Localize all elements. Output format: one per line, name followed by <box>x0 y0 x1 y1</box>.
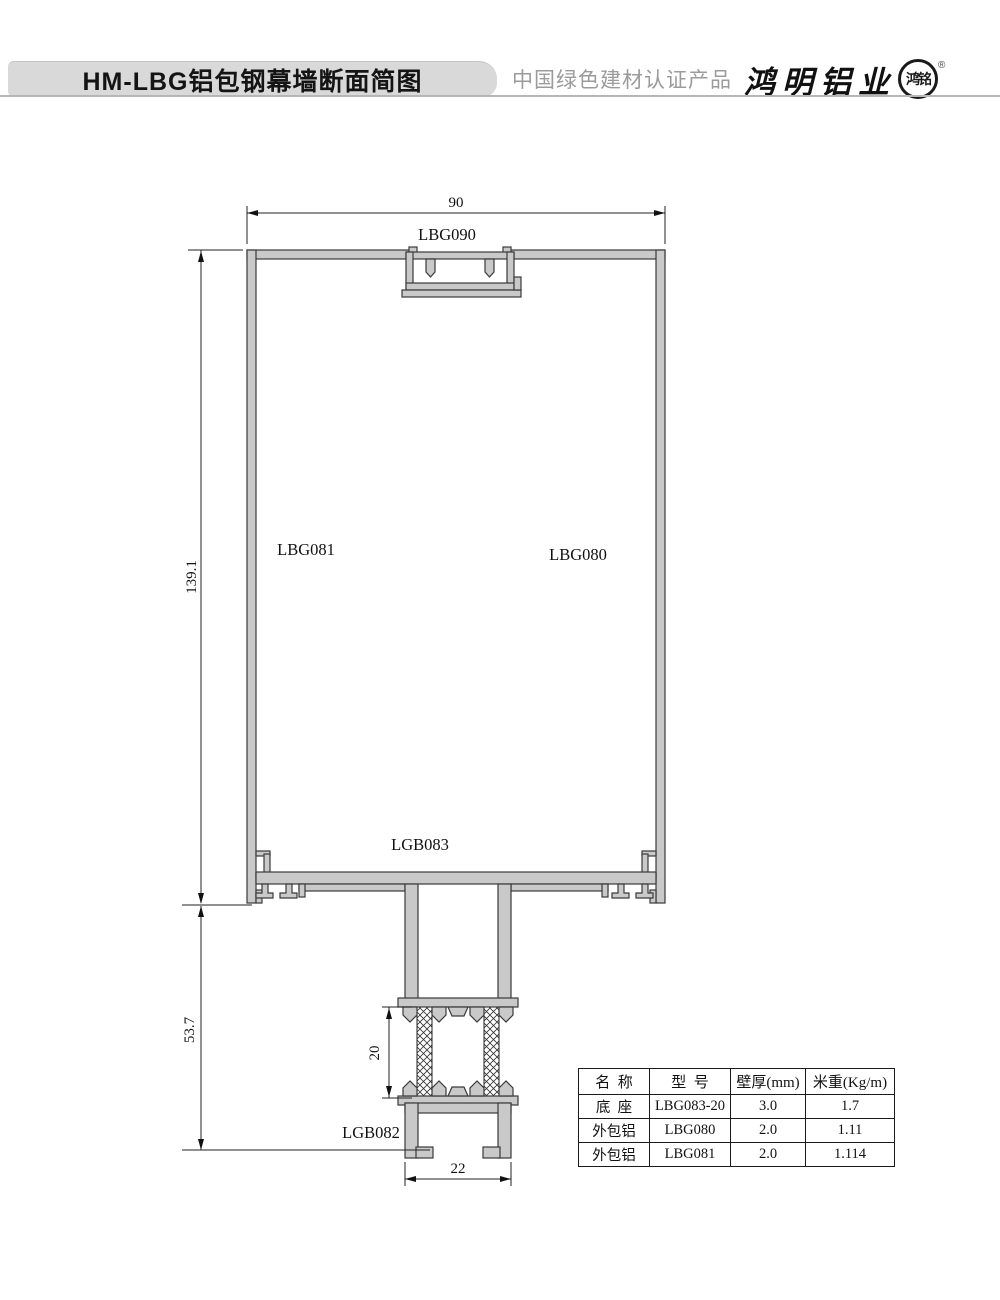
dim-lower-height: 53.7 <box>182 1016 198 1043</box>
cell-name: 底 座 <box>579 1095 650 1119</box>
dim-top-width: 90 <box>449 195 464 211</box>
dim-thermal-gap: 20 <box>367 1046 383 1061</box>
label-lbg080: LBG080 <box>549 545 607 564</box>
brand-seal-text: 鸿铭 <box>906 69 930 89</box>
cell-thickness: 2.0 <box>731 1119 806 1143</box>
table-row: 外包铝 LBG080 2.0 1.11 <box>579 1119 895 1143</box>
col-header-name: 名 称 <box>579 1069 650 1095</box>
spec-table: 名 称 型 号 壁厚(mm) 米重(Kg/m) 底 座 LBG083-20 3.… <box>578 1068 895 1167</box>
cell-weight: 1.7 <box>806 1095 895 1119</box>
col-header-weight: 米重(Kg/m) <box>806 1069 895 1095</box>
cell-weight: 1.11 <box>806 1119 895 1143</box>
dim-base-width: 22 <box>451 1161 466 1177</box>
main-profile-body <box>247 247 665 1002</box>
cell-name: 外包铝 <box>579 1143 650 1167</box>
page-title-bar: HM-LBG铝包钢幕墙断面简图 <box>8 61 497 97</box>
certification-text: 中国绿色建材认证产品 <box>512 64 732 94</box>
page-title: HM-LBG铝包钢幕墙断面简图 <box>83 62 423 98</box>
cell-weight: 1.114 <box>806 1143 895 1167</box>
page: 90 LBG090 LBG081 LBG080 LGB083 LGB082 13… <box>0 0 1000 1300</box>
col-header-model: 型 号 <box>650 1069 731 1095</box>
label-lbg090: LBG090 <box>418 225 476 244</box>
dim-left-height: 139.1 <box>184 560 200 594</box>
col-header-thickness: 壁厚(mm) <box>731 1069 806 1095</box>
cell-model: LBG080 <box>650 1119 731 1143</box>
label-lgb083: LGB083 <box>391 835 449 854</box>
header-right: 中国绿色建材认证产品 鸿明铝业 鸿铭 ® <box>512 58 994 100</box>
drawing-texts: 90 LBG090 LBG081 LBG080 LGB083 LGB082 13… <box>182 195 607 1177</box>
label-lbg081: LBG081 <box>277 540 335 559</box>
cell-model: LBG081 <box>650 1143 731 1167</box>
table-row: 底 座 LBG083-20 3.0 1.7 <box>579 1095 895 1119</box>
thermal-break-strips <box>417 1003 499 1100</box>
cell-model: LBG083-20 <box>650 1095 731 1119</box>
header-divider <box>0 95 1000 97</box>
thermal-clamp-plates <box>398 998 518 1158</box>
cell-name: 外包铝 <box>579 1119 650 1143</box>
label-lgb082: LGB082 <box>342 1123 400 1142</box>
brand-seal-icon: 鸿铭 <box>898 59 938 99</box>
spec-table-header-row: 名 称 型 号 壁厚(mm) 米重(Kg/m) <box>579 1069 895 1095</box>
cell-thickness: 3.0 <box>731 1095 806 1119</box>
table-row: 外包铝 LBG081 2.0 1.114 <box>579 1143 895 1167</box>
registered-trademark-mark: ® <box>938 60 945 71</box>
cell-thickness: 2.0 <box>731 1143 806 1167</box>
